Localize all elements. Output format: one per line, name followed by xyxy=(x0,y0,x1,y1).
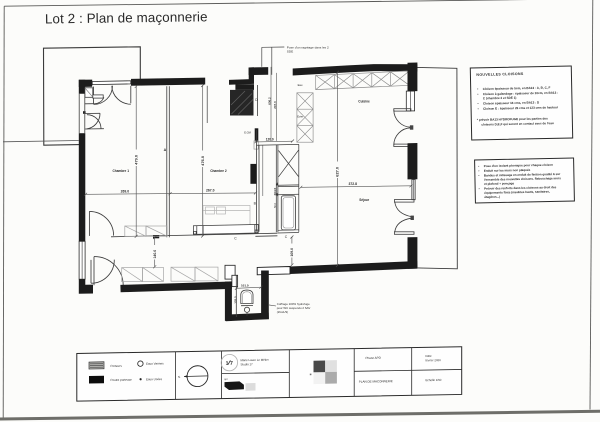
svg-text:101.0: 101.0 xyxy=(241,283,249,287)
svg-text:Cuisine: Cuisine xyxy=(358,100,370,104)
svg-text:125.0: 125.0 xyxy=(234,296,238,304)
svg-text:Phase APD: Phase APD xyxy=(366,356,382,360)
svg-text:Chambre 2: Chambre 2 xyxy=(210,169,227,173)
svg-text:479.0: 479.0 xyxy=(134,155,139,165)
svg-text:•: • xyxy=(478,107,479,111)
svg-text:Porteurs: Porteurs xyxy=(111,364,123,368)
svg-text:372.8: 372.8 xyxy=(349,182,358,186)
svg-text:Lot 2 : Plan de maçonnerie: Lot 2 : Plan de maçonnerie xyxy=(45,9,208,26)
svg-text:C (chambre 2 et SDE 1): C (chambre 2 et SDE 1) xyxy=(483,96,517,101)
svg-text:Chambre 1: Chambre 1 xyxy=(113,169,130,173)
svg-text:•: • xyxy=(478,164,479,168)
svg-text:•: • xyxy=(479,187,480,191)
svg-text:E.GM: E.GM xyxy=(244,130,251,134)
svg-text:Echelle 1/50: Echelle 1/50 xyxy=(426,378,442,382)
svg-text:étagères...): étagères...) xyxy=(484,195,500,199)
svg-text:•: • xyxy=(477,92,478,96)
svg-text:Séjour: Séjour xyxy=(359,198,370,202)
svg-text:120.0: 120.0 xyxy=(266,137,274,141)
svg-text:476.0: 476.0 xyxy=(200,156,205,166)
svg-text:BV: BV xyxy=(225,378,229,381)
svg-text:606.2: 606.2 xyxy=(267,97,271,105)
svg-text:Eau: Eau xyxy=(298,83,303,87)
svg-text:Eaux Usées: Eaux Usées xyxy=(146,377,163,381)
svg-text:109.0: 109.0 xyxy=(290,248,294,257)
svg-text:140.0: 140.0 xyxy=(153,250,157,259)
svg-text:Evier: Evier xyxy=(297,114,303,118)
svg-text:SDE: SDE xyxy=(287,50,293,54)
svg-text:50.0: 50.0 xyxy=(273,202,277,208)
svg-text:Studio 17: Studio 17 xyxy=(241,362,254,366)
svg-text:264.0: 264.0 xyxy=(273,187,277,195)
svg-text:269.0: 269.0 xyxy=(121,189,130,193)
svg-text:A: A xyxy=(164,148,167,152)
svg-text:Eaux Vannes: Eaux Vannes xyxy=(146,361,164,365)
svg-text:PLAN DE MACONNERIE: PLAN DE MACONNERIE xyxy=(359,379,393,384)
svg-text:•: • xyxy=(478,174,479,178)
svg-text:Poutre porteuse: Poutre porteuse xyxy=(111,378,133,382)
svg-text:N.: N. xyxy=(178,375,181,379)
svg-text:•: • xyxy=(478,169,479,173)
svg-text:•: • xyxy=(477,102,478,106)
svg-text:février 2020: février 2020 xyxy=(426,358,442,362)
svg-text:267.0: 267.0 xyxy=(206,188,215,192)
svg-text:237.0: 237.0 xyxy=(273,101,277,109)
svg-text:7: 7 xyxy=(230,361,233,367)
svg-text:(2Gx1/9): (2Gx1/9) xyxy=(277,310,288,314)
svg-text:627.0: 627.0 xyxy=(335,167,340,177)
svg-text:•: • xyxy=(477,87,478,91)
